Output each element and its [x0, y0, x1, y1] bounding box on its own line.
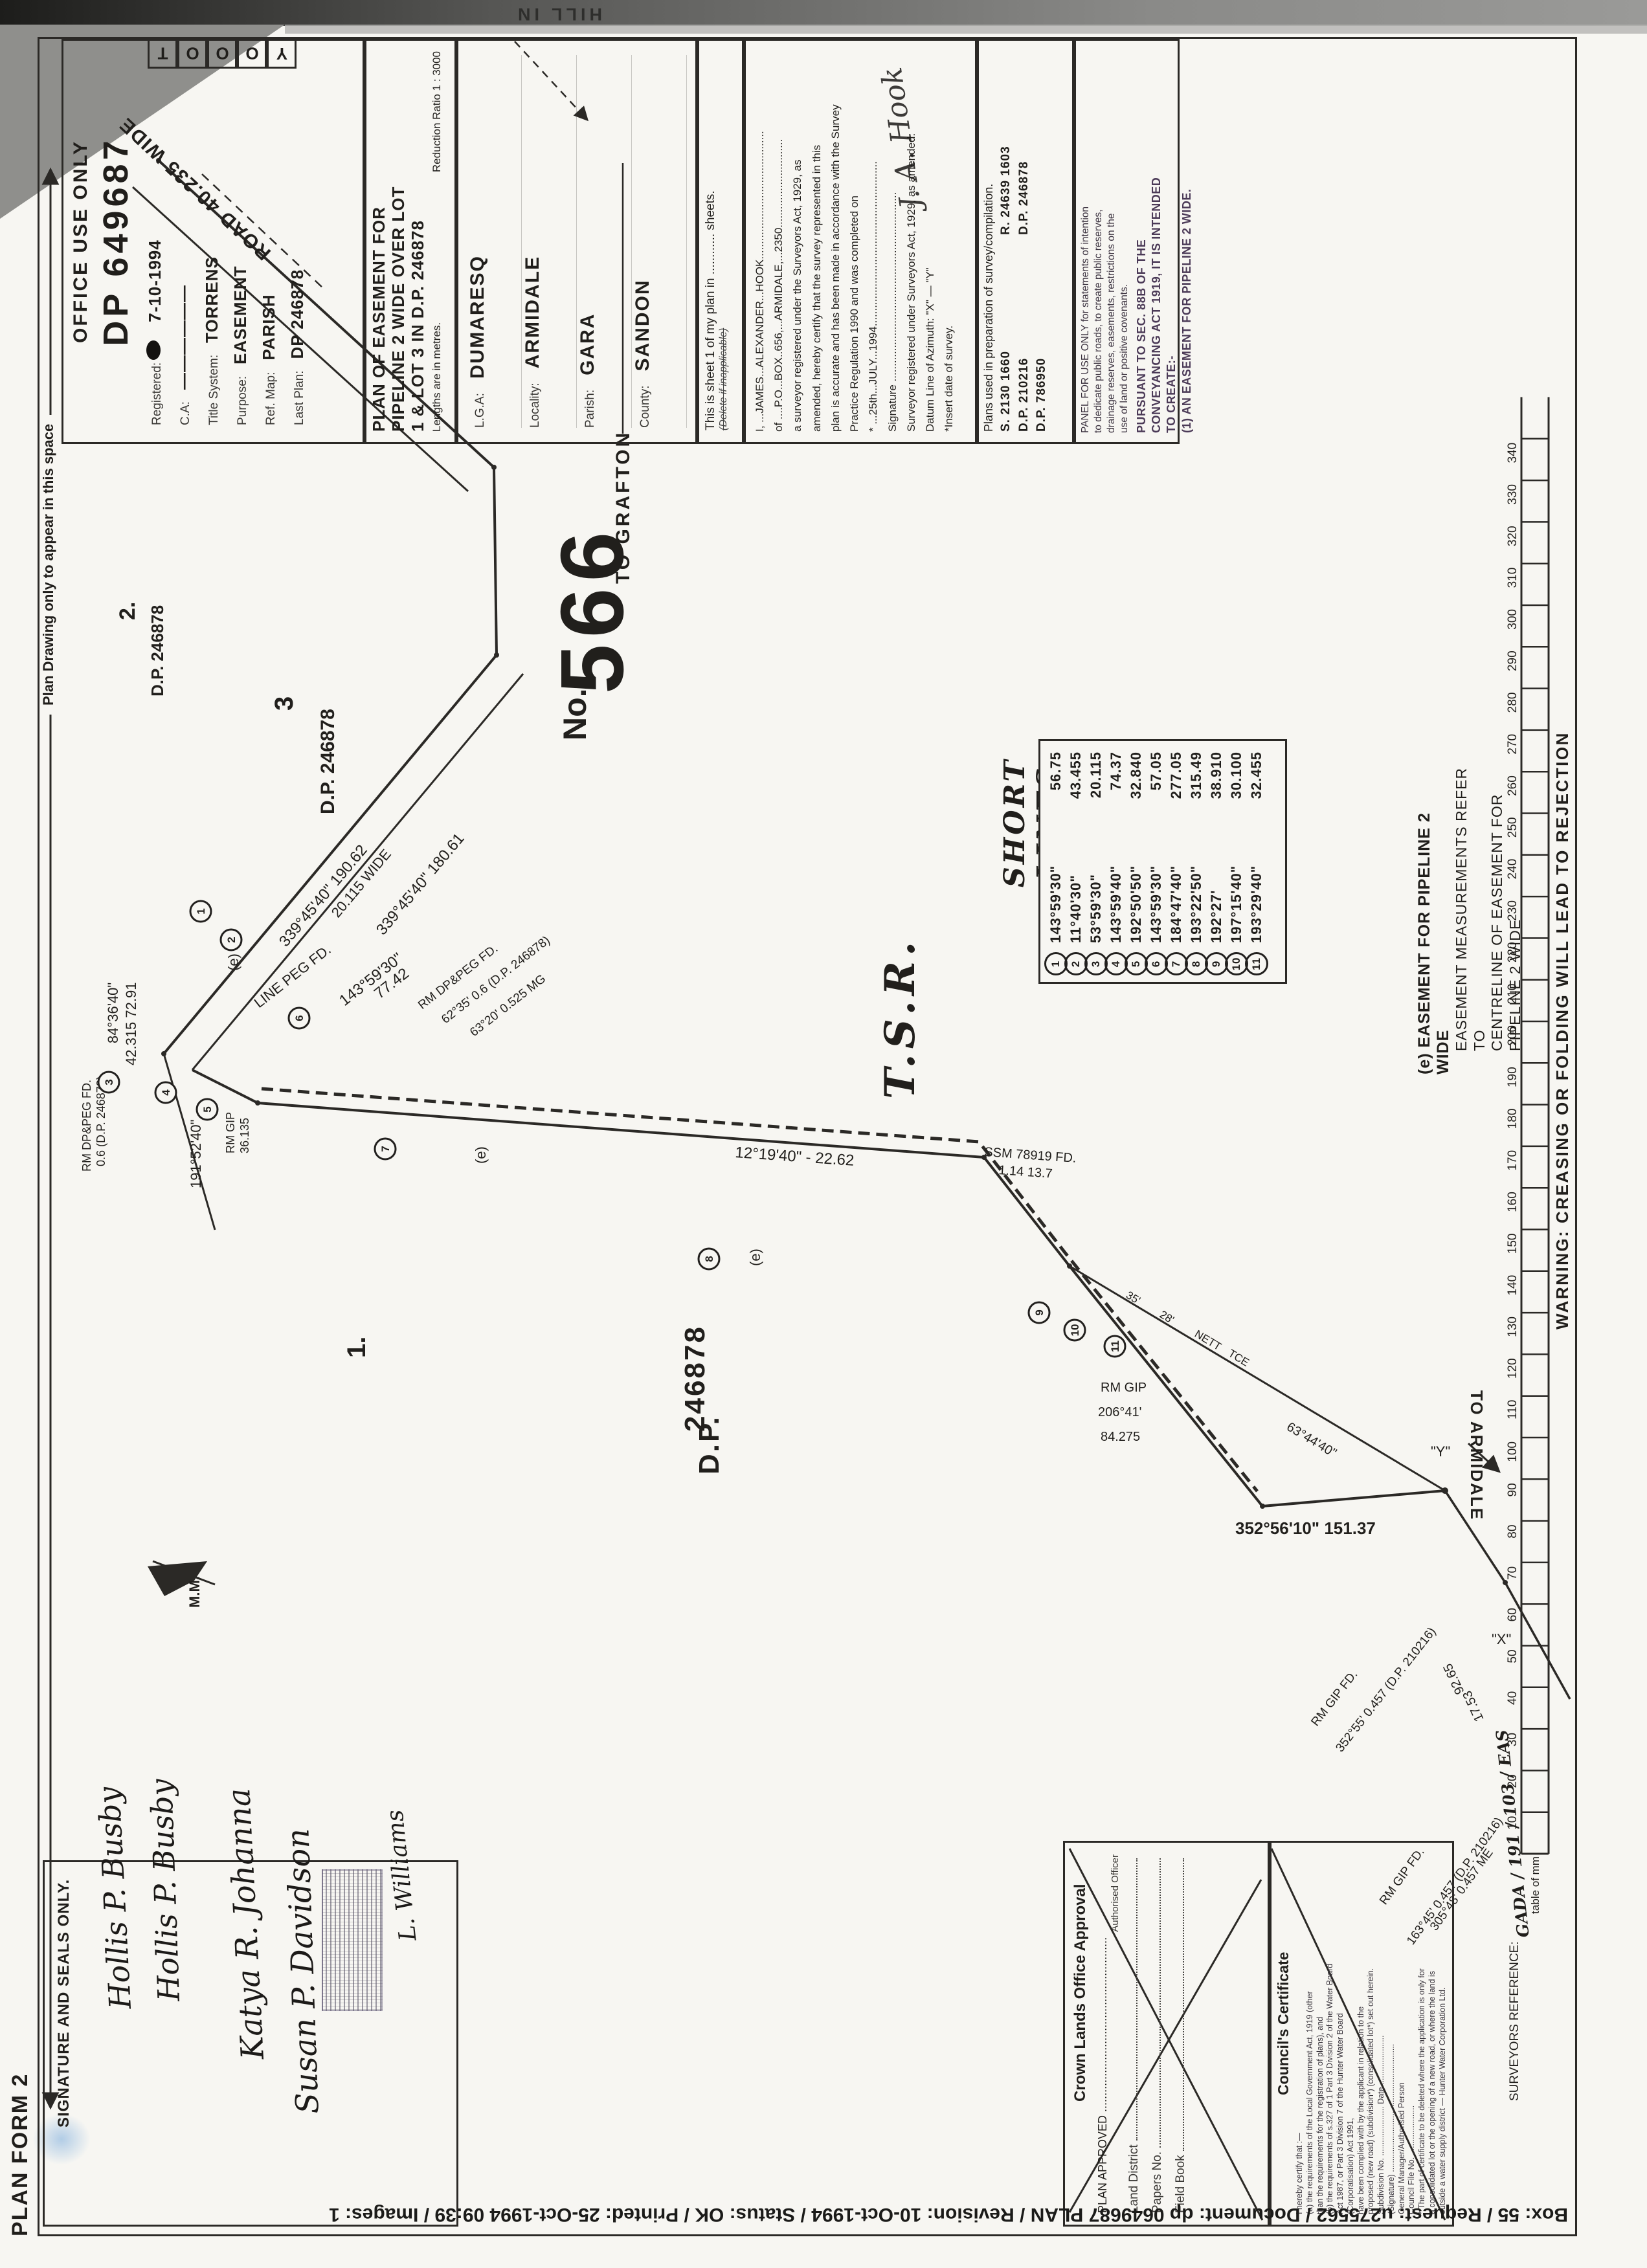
bearing-label: D.P. 246878 — [317, 709, 339, 814]
bearing-label: TCE — [1226, 1347, 1251, 1369]
short-lines-row: 10197°15'40"30.100 — [1226, 748, 1246, 975]
ruler-tick-label: 170 — [1506, 1150, 1519, 1171]
plans-used-item: D.P. 246878 — [1015, 51, 1033, 235]
short-lines-row: 211°40'30"43.455 — [1066, 748, 1086, 975]
archive-footer: Box: 55 / Request: u275562 / Document: d… — [83, 2203, 1568, 2225]
line-distance: 32.455 — [1248, 748, 1265, 836]
notary-stamp — [322, 1869, 383, 2011]
council-certificate-line: have been complied with by the applicant… — [1356, 1853, 1367, 2214]
line-bearing: 184°47'40" — [1168, 836, 1185, 943]
short-lines-table: 1143°59'30"56.75211°40'30"43.455353°59'3… — [1038, 739, 1287, 984]
short-lines-row: 353°59'30"20.115 — [1086, 748, 1106, 975]
traverse-line — [192, 1070, 1445, 1506]
intention-body-line: PANEL FOR USE ONLY for statements of int… — [1079, 50, 1092, 433]
punch-letter-box: O — [207, 38, 237, 69]
bearing-label: 1. — [342, 1337, 371, 1358]
bearing-label: 352°56'10" 151.37 — [1235, 1518, 1376, 1538]
short-lines-row: 1143°59'30"56.75 — [1046, 748, 1066, 975]
intention-pursuant-line: CONVEYANCING ACT 1919, IT IS INTENDED — [1149, 50, 1164, 433]
line-bearing: 143°59'40" — [1108, 836, 1125, 943]
ruler-tick-label: 320 — [1506, 526, 1519, 546]
intention-pursuant-line: TO CREATE:- — [1164, 50, 1179, 433]
bearing-label: 63°44'40" — [1284, 1419, 1339, 1460]
bearing-label: 63°20' 0.525 MG — [467, 972, 548, 1039]
bearing-label: 92.65 — [1440, 1662, 1467, 1697]
line-bearing: 192°50'50" — [1128, 836, 1145, 943]
ruler-tick-label: 340 — [1506, 443, 1519, 463]
ruler-tick-label: 90 — [1506, 1483, 1519, 1496]
station-number: 11 — [1109, 1340, 1121, 1352]
station-number: 3 — [103, 1079, 115, 1085]
line-bearing: 193°29'40" — [1248, 836, 1265, 943]
council-certificate-line: outside a water supply district — Hunter… — [1438, 1853, 1448, 2214]
easement-note-line: EASEMENT MEASUREMENTS REFER TO — [1453, 764, 1488, 1051]
bearing-label: LINE PEG FD. — [251, 941, 334, 1011]
ruler-tick-label: 290 — [1506, 650, 1519, 671]
title-block-panel: PLAN OF EASEMENT FOR PIPELINE 2 WIDE OVE… — [363, 39, 458, 444]
ruler-tick-label: 180 — [1506, 1109, 1519, 1129]
ruler-tick-label: 140 — [1506, 1275, 1519, 1296]
plans-used-item: D.P. 786950 — [1033, 248, 1051, 432]
ruler-tick-label: 330 — [1506, 484, 1519, 505]
authorised-officer: Authorised Officer — [1110, 1843, 1121, 2225]
easement-note-line1: (e) EASEMENT FOR PIPELINE 2 WIDE — [1415, 764, 1453, 1074]
office-field-row: Purpose:EASEMENT — [230, 58, 259, 425]
ruler-tick-label: 150 — [1506, 1234, 1519, 1254]
boundary-south — [1445, 1491, 1570, 1699]
plans-used-item: S. 2130 1660 — [997, 248, 1015, 432]
ruler-tick-label: 110 — [1506, 1400, 1519, 1419]
line-bearing: 193°22'50" — [1188, 836, 1205, 943]
line-bearing: 143°59'30" — [1048, 836, 1064, 943]
plan-approved-line: PLAN APPROVED ..........................… — [1092, 1843, 1110, 2225]
council-heading: Council's Certificate — [1270, 1843, 1294, 2225]
ruler-tick-label: 50 — [1506, 1650, 1519, 1663]
office-use-heading: OFFICE USE ONLY — [70, 41, 92, 442]
station-number: 10 — [1069, 1324, 1081, 1337]
bearing-label: RM GIP — [224, 1112, 237, 1153]
council-certificate-line: I hereby certify that :— — [1295, 1853, 1305, 2214]
station-number: 9 — [1033, 1309, 1046, 1315]
bearing-label: RM GIP FD. — [1308, 1668, 1360, 1729]
ruler-tick-label: 80 — [1506, 1525, 1519, 1539]
bearing-label: No. — [557, 688, 593, 740]
surveyor-certificate-line: Practice Regulation 1990 and was complet… — [845, 51, 864, 432]
bearing-label: (e) — [473, 1146, 489, 1164]
station-number: 1 — [195, 908, 207, 914]
plans-used-item: R. 24639 1603 — [997, 51, 1015, 235]
crown-heading: Crown Lands Office Approval — [1065, 1843, 1092, 2225]
surveyors-reference: SURVEYORS REFERENCE: GADA / 191 / 103 / … — [1503, 1729, 1522, 2101]
surveyor-certificate-line: amended, hereby certify that the survey … — [807, 51, 826, 432]
easement-note-line: PIPELINE 2 WIDE — [1507, 764, 1525, 1051]
office-field-row: C.A:—————— — [174, 58, 202, 425]
lengths-note: Lengths are in metres. — [431, 322, 443, 432]
office-field-row: Last Plan:DP 246878 — [287, 58, 316, 425]
office-field-row: Title System:TORRENS — [202, 58, 230, 425]
council-certificate-line: (Corporatisation) Act 1991, — [1346, 1853, 1356, 2214]
surveyor-certificate-line: *Insert date of survey. — [939, 51, 958, 432]
location-field-row: Locality:ARMIDALE — [522, 55, 577, 428]
council-certificate-line: than the requirements for the registrati… — [1316, 1853, 1326, 2214]
short-lines-row: 9192°27'38.910 — [1206, 748, 1226, 975]
intention-panel: PANEL FOR USE ONLY for statements of int… — [1072, 39, 1180, 444]
ruler-tick-label: 310 — [1506, 568, 1519, 588]
council-certificate-line: (b) the requirements of s.327 of 1 Part … — [1325, 1853, 1336, 2214]
council-certificate-line: General Manager/Authorised Person — [1397, 1853, 1407, 2214]
station-number: 4 — [160, 1089, 172, 1096]
short-lines-row: 4143°59'40"74.37 — [1106, 748, 1126, 975]
line-distance: 32.840 — [1128, 748, 1145, 836]
plans-used-panel: Plans used in preparation of survey/comp… — [975, 39, 1076, 444]
easement-note: (e) EASEMENT FOR PIPELINE 2 WIDE EASEMEN… — [1415, 764, 1524, 1074]
bearing-label: 28' — [1158, 1308, 1176, 1326]
line-bearing: 143°59'30" — [1148, 836, 1165, 943]
punch-letter-box: O — [237, 38, 267, 69]
council-certificate-line: (Signature) ............................… — [1387, 1853, 1397, 2214]
bearing-label: (e) — [747, 1249, 763, 1266]
intention-body-line: to dedicate public roads, to create publ… — [1092, 50, 1105, 433]
line-distance: 20.115 — [1088, 748, 1104, 836]
fold-warning: WARNING: CREASING OR FOLDING WILL LEAD T… — [1552, 731, 1573, 1329]
ruler-tick-label: 300 — [1506, 609, 1519, 630]
surveyor-certificate-line: * ...25th...JULY...1994.................… — [864, 51, 882, 432]
ruler-tick-label: 280 — [1506, 693, 1519, 713]
bearing-label: M.M. — [186, 1576, 203, 1608]
short-lines-row: 6143°59'30"57.05 — [1146, 748, 1166, 975]
short-lines-row: 5192°50'50"32.840 — [1126, 748, 1146, 975]
council-certificate-line: Council File No. ...................... — [1407, 1853, 1417, 2214]
reduction-ratio: Reduction Ratio 1 : 3000 — [431, 51, 443, 172]
surveyor-certificate-line: of ....P.O...BOX..656,...ARMIDALE,...235… — [769, 51, 788, 432]
plans-used-heading: Plans used in preparation of survey/comp… — [977, 41, 997, 442]
bearing-label: 17.53 — [1460, 1689, 1486, 1724]
punch-letter-box: O — [177, 38, 207, 69]
crown-field-row: Land District — [1127, 1854, 1150, 2213]
plans-used-item: D.P. 210216 — [1015, 248, 1033, 432]
registration-stamp-blob — [146, 340, 161, 360]
ruler-tick-label: 160 — [1506, 1192, 1519, 1212]
office-field-row: Ref. Map:PARISH — [259, 58, 287, 425]
line-distance: 57.05 — [1148, 748, 1165, 836]
intention-pursuant-line: PURSUANT TO SEC. 88B OF THE — [1134, 50, 1149, 433]
ruler-tick-label: 40 — [1506, 1691, 1519, 1705]
bearing-label: 35' — [1124, 1289, 1143, 1307]
location-field-row: L.G.A:DUMARESQ — [467, 55, 522, 428]
line-distance: 43.455 — [1068, 748, 1084, 836]
intention-pursuant-line: (1) AN EASEMENT FOR PIPELINE 2 WIDE. — [1180, 50, 1194, 433]
bearing-label: RM GIP — [1101, 1381, 1147, 1395]
short-lines-row: 11193°29'40"32.455 — [1246, 748, 1266, 975]
easement-note-line: CENTRELINE OF EASEMENT FOR — [1488, 764, 1507, 1051]
location-field-row: Parish:GARA — [577, 55, 632, 428]
bearing-label: SSM 78919 FD. — [984, 1145, 1077, 1166]
ruler-tick-label: 70 — [1506, 1566, 1519, 1580]
crown-approval-panel: Crown Lands Office Approval PLAN APPROVE… — [1063, 1841, 1272, 2227]
bearing-label: RM DP&PEG FD. — [80, 1080, 93, 1172]
line-distance: 56.75 — [1048, 748, 1064, 836]
bearing-label: 42.315 72.91 — [123, 983, 139, 1065]
punch-letter-boxes: TOOOY — [148, 38, 297, 69]
bearing-label: 2. — [115, 602, 140, 620]
council-certificate-panel: Council's Certificate I hereby certify t… — [1268, 1841, 1454, 2227]
ruler-tick-label: 120 — [1506, 1358, 1519, 1379]
ruler-tick-label: 270 — [1506, 734, 1519, 755]
bearing-label: (e) — [225, 953, 241, 971]
bearing-label: 3 — [270, 696, 298, 711]
bearing-label: T.S.R. — [876, 937, 924, 1099]
plan-title-line: PIPELINE 2 WIDE OVER LOT — [389, 51, 409, 432]
surveyors-reference-label: SURVEYORS REFERENCE: — [1508, 1941, 1521, 2101]
line-bearing: 53°59'30" — [1088, 836, 1104, 943]
ruler-tick-label: 100 — [1506, 1441, 1519, 1462]
surveyor-certificate-line: a surveyor registered under the Surveyor… — [788, 51, 807, 432]
office-field-row: Registered:7-10-1994 — [145, 58, 174, 425]
bearing-label: TO ARMIDALE — [1467, 1390, 1486, 1520]
bearing-label: 36.135 — [238, 1118, 251, 1153]
council-certificate-line: a consolidated lot or the opening of a n… — [1428, 1853, 1438, 2214]
crown-field-row: Field Book — [1174, 1854, 1197, 2213]
surveyor-certificate-panel: I, ...JAMES...ALEXANDER...HOOK..........… — [742, 39, 979, 444]
intention-body-line: drainage reserves, easements, restrictio… — [1105, 50, 1118, 433]
plan-title-line: 1 & LOT 3 IN D.P. 246878 — [409, 51, 428, 432]
bearing-label: 12°19'40" - 22.62 — [735, 1144, 855, 1170]
plan-title-line: PLAN OF EASEMENT FOR — [370, 51, 389, 432]
ruler-tick-label: 60 — [1506, 1608, 1519, 1621]
ruler-tick-label: 130 — [1506, 1317, 1519, 1337]
station-number: 6 — [293, 1015, 306, 1021]
line-bearing: 197°15'40" — [1228, 836, 1245, 943]
line-distance: 38.910 — [1208, 748, 1225, 836]
surveyor-certificate-line: Datum Line of Azimuth: "X" — "Y" — [921, 51, 939, 432]
council-certificate-line: (a) the requirements of the Local Govern… — [1305, 1853, 1316, 2214]
council-certificate-line: Act 1987, or Part 3 Division 7 of the Hu… — [1336, 1853, 1346, 2214]
bearing-label: 191°52'40" — [188, 1120, 204, 1188]
council-certificate-line: * The part of certificate to be deleted … — [1417, 1853, 1428, 2214]
office-use-panel: OFFICE USE ONLY DP 649687 Registered:7-1… — [62, 39, 366, 444]
surveyor-certificate-line: I, ...JAMES...ALEXANDER...HOOK..........… — [750, 51, 769, 432]
drawing-space-note: Plan Drawing only to appear in this spac… — [40, 415, 57, 715]
line-bearing: 192°27' — [1208, 836, 1225, 943]
crown-field-row: Papers No. — [1150, 1854, 1174, 2213]
scanned-survey-plan-page: HILL IN PLAN FORM 2 Plan Drawing only to… — [0, 0, 1647, 2268]
bearing-label: "Y" — [1431, 1443, 1450, 1460]
dp-number: DP 649687 — [96, 41, 136, 442]
punch-letter-box: Y — [267, 38, 297, 69]
station-number: 5 — [201, 1106, 214, 1112]
line-number: 11 — [1245, 952, 1268, 975]
punch-letter-box: T — [148, 38, 177, 69]
station-number: 8 — [703, 1256, 715, 1262]
line-distance: 315.49 — [1188, 748, 1205, 836]
line-distance: 74.37 — [1108, 748, 1125, 836]
line-distance: 30.100 — [1228, 748, 1245, 836]
line-distance: 277.05 — [1168, 748, 1185, 836]
short-lines-row: 7184°47'40"277.05 — [1166, 748, 1186, 975]
line-bearing: 11°40'30" — [1068, 836, 1084, 943]
bearing-label: 84°36'40" — [105, 983, 121, 1043]
plan-sheet-landscape: PLAN FORM 2 Plan Drawing only to appear … — [0, 0, 1647, 2268]
bearing-label: 339°45'40" 180.61 — [373, 830, 468, 939]
sheet-note-delete: (Delete if inapplicable) — [718, 41, 730, 442]
signature-heading: SIGNATURE AND SEALS ONLY. — [45, 1862, 73, 2225]
bearing-label: 206°41' — [1098, 1405, 1141, 1419]
bearing-label: "X" — [1492, 1631, 1511, 1647]
council-certificate-line: Subdivision No. ...................... D… — [1376, 1853, 1387, 2214]
council-certificate-line: proposed (new road) (subdivision*) (cons… — [1366, 1853, 1376, 2214]
frontage-line-2 — [192, 674, 523, 1070]
bearing-label: 566 — [543, 526, 642, 694]
location-panel: L.G.A:DUMARESQLocality:ARMIDALEParish:GA… — [454, 39, 699, 444]
bearing-label: 246878 — [679, 1325, 711, 1432]
bearing-label: 84.275 — [1101, 1430, 1140, 1444]
sheet-note: This is sheet 1 of my plan in ..........… — [704, 190, 717, 430]
bearing-label: D.P. 246878 — [148, 605, 167, 696]
location-field-row: County:SANDON — [632, 55, 687, 428]
station-number: 2 — [225, 937, 238, 942]
surveyor-certificate-line: plan is accurate and has been made in ac… — [826, 51, 845, 432]
station-number: 7 — [379, 1146, 392, 1151]
sheet-note-panel: This is sheet 1 of my plan in ..........… — [695, 39, 746, 444]
short-lines-row: 8193°22'50"315.49 — [1186, 748, 1206, 975]
intention-body-line: use of land or positive covenants. — [1118, 50, 1131, 433]
